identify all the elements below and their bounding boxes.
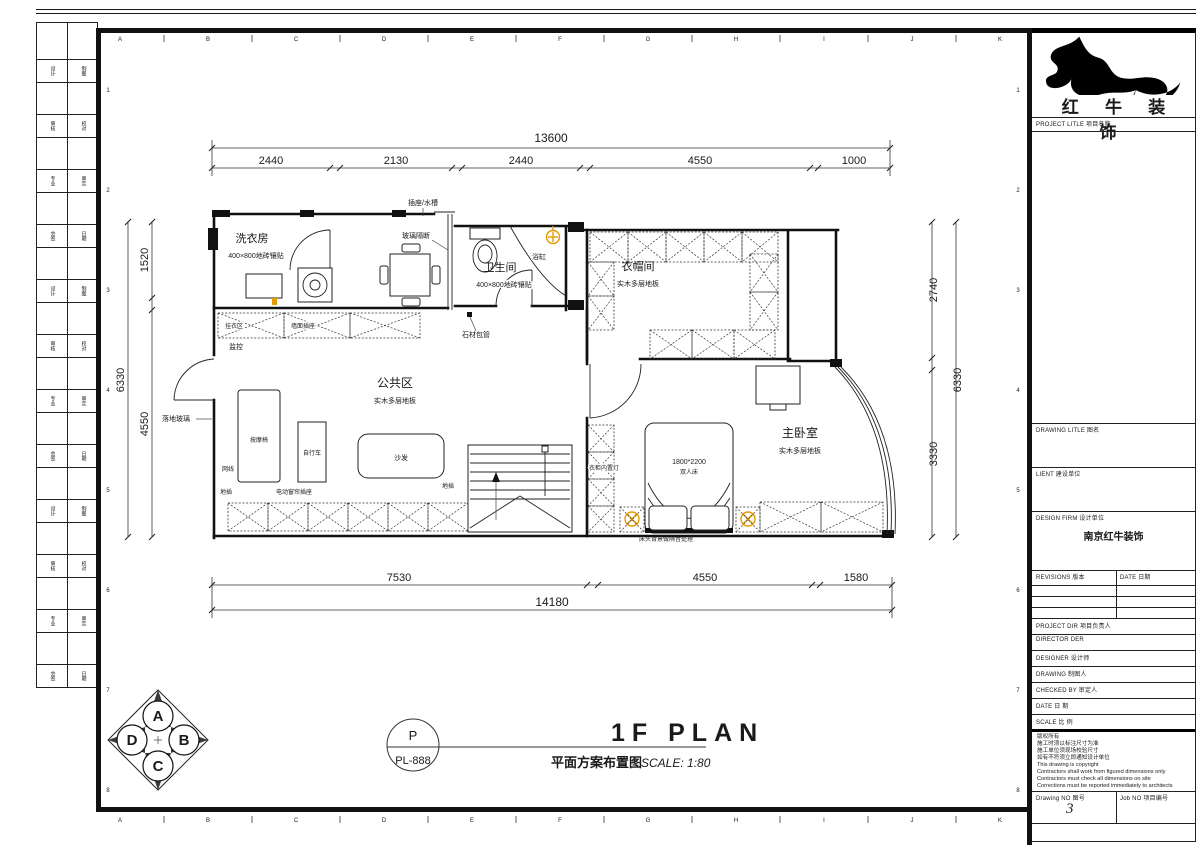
dimension-lines: 13600 2440 2130 2440 4550 1000 7530 4550… [115,131,964,618]
sheet-edge-line2 [36,13,1196,14]
svg-text:6: 6 [106,588,110,594]
svg-text:G: G [646,37,651,43]
staircase [468,445,572,532]
svg-text:地插: 地插 [442,482,454,490]
svg-text:床头背景做隔音处理: 床头背景做隔音处理 [639,535,693,543]
massage-chair [238,390,280,482]
strip-row: 设计制图 [37,499,97,523]
revisions-label: REVISIONS 版本 [1036,572,1085,581]
svg-text:4: 4 [1016,388,1020,394]
orientation-compass: A B C D [108,690,208,790]
svg-text:6330: 6330 [115,368,127,392]
svg-text:1: 1 [106,88,110,94]
laundry-socket-mark [272,298,277,305]
strip-cell: 制图 [68,500,98,522]
strip-row: 设计制图 [37,279,97,303]
svg-text:4550: 4550 [139,412,151,436]
title-block: 红 牛 装 饰 PROJECT LITLE 项目名称 DRAWING LITLE… [1032,28,1196,842]
drawing-no-value: 3 [1066,801,1074,818]
svg-text:6: 6 [1016,588,1020,594]
plan-title-en: 1F PLAN [611,719,764,747]
strip-cell: 审定 [68,170,98,192]
svg-text:I: I [823,818,825,824]
strip-cell: 会签 [37,665,67,687]
svg-text:2130: 2130 [384,155,408,167]
drawing-frame [96,28,1032,845]
svg-text:E: E [470,818,474,824]
plan-title-cn: 平面方案布置图 [551,755,642,770]
svg-text:实木多层地板: 实木多层地板 [617,279,659,288]
svg-text:B: B [206,818,210,824]
strip-cell: 制图 [68,60,98,82]
svg-text:玻璃隔断: 玻璃隔断 [402,231,430,240]
svg-text:C: C [153,758,164,775]
svg-text:7: 7 [1016,688,1020,694]
logo-text: 红 牛 装 饰 [1032,93,1195,143]
svg-text:8: 8 [106,788,110,794]
drawing-title-label: DRAWING LITLE 图名 [1036,425,1099,434]
svg-text:监控: 监控 [229,342,243,351]
svg-text:按摩椅: 按摩椅 [250,436,268,444]
director-label: DIRECTOR DER [1036,637,1084,643]
svg-text:1520: 1520 [139,248,151,272]
svg-text:插座/水槽: 插座/水槽 [408,198,438,207]
strip-cell: 设计 [37,60,67,82]
svg-text:2: 2 [106,188,110,194]
svg-text:400×800地砖镶贴: 400×800地砖镶贴 [476,280,531,289]
svg-text:挂衣区: 挂衣区 [225,322,243,330]
strip-cell: 专业 [37,610,67,632]
svg-text:石材包管: 石材包管 [462,330,490,339]
svg-text:6330: 6330 [952,368,964,392]
svg-text:D: D [127,732,138,749]
svg-text:I: I [823,37,825,43]
strip-row: 会签日期 [37,224,97,248]
laundry-counter [246,274,282,298]
strip-row: 审核校对 [37,334,97,358]
svg-text:D: D [382,37,387,43]
drawing-label: DRAWING 制图人 [1036,669,1087,678]
svg-text:K: K [998,37,1002,43]
svg-text:B: B [206,37,210,43]
svg-text:1580: 1580 [844,572,868,584]
svg-text:沙发: 沙发 [394,453,408,462]
svg-text:5: 5 [106,488,110,494]
svg-text:14180: 14180 [535,595,569,609]
svg-text:400×800地砖镶贴: 400×800地砖镶贴 [228,251,283,260]
strip-cell: 审核 [37,555,67,577]
svg-text:墙面插座: 墙面插座 [291,322,315,330]
client-label: LIENT 建设单位 [1036,469,1081,478]
sheet-edge-line [36,9,1196,10]
svg-text:双人床: 双人床 [680,468,698,476]
redbull-logo-icon [1032,35,1196,95]
svg-text:F: F [558,37,562,43]
room-label-laundry: 洗衣房 [236,231,269,245]
strip-cell: 日期 [68,225,98,247]
svg-text:7: 7 [106,688,110,694]
svg-text:3: 3 [106,288,110,294]
strip-row: 审核校对 [37,114,97,138]
design-firm-value: 南京红牛装饰 [1032,528,1195,543]
floor-plan-drawing: AB CD EF GH IJ K AB CD EF GH IJ K 12 34 … [96,28,1032,845]
strip-cell: 日期 [68,665,98,687]
bed [645,423,733,533]
svg-text:13600: 13600 [534,131,568,145]
svg-text:J: J [911,818,914,824]
strip-row: 会签日期 [37,444,97,468]
svg-text:实木多层地板: 实木多层地板 [374,396,416,405]
designer-label: DESIGNER 设计师 [1036,653,1089,662]
svg-text:2: 2 [1016,188,1020,194]
svg-text:衣柜内置灯: 衣柜内置灯 [589,464,619,472]
strip-cell: 审核 [37,335,67,357]
svg-text:自行车: 自行车 [303,449,321,457]
svg-text:H: H [734,818,738,824]
svg-text:2440: 2440 [509,155,533,167]
drawing-no-label: Drawing NO 图号 [1036,793,1085,802]
svg-text:G: G [646,818,651,824]
note-line: Corrections must be reported immediately… [1037,783,1193,790]
strip-cell: 制图 [68,280,98,302]
room-label-public: 公共区 [377,376,413,390]
toilet [470,228,500,239]
room-label-master: 主卧室 [782,425,818,440]
svg-text:落地玻璃: 落地玻璃 [162,414,190,423]
svg-text:实木多层地板: 实木多层地板 [779,446,821,455]
svg-text:1800*2200: 1800*2200 [672,459,706,466]
plan-code-letter: P [409,728,418,743]
date-col-label: DATE 日期 [1120,572,1151,581]
job-no-label: Job NO 项目编号 [1120,793,1168,802]
svg-text:2740: 2740 [928,278,940,302]
strip-cell: 校对 [68,335,98,357]
strip-cell: 审定 [68,390,98,412]
strip-row: 专业审定 [37,609,97,633]
svg-text:4: 4 [106,388,110,394]
svg-text:D: D [382,818,387,824]
svg-text:网线: 网线 [222,465,234,473]
strip-cell: 专业 [37,390,67,412]
room-label-cloakroom: 衣帽间 [622,259,655,273]
strip-row: 专业审定 [37,169,97,193]
strip-cell: 设计 [37,500,67,522]
strip-row: 专业审定 [37,389,97,413]
svg-text:5: 5 [1016,488,1020,494]
strip-cell: 审定 [68,610,98,632]
plan-scale: SCALE: 1:80 [641,756,711,770]
sheet-title: P PL-888 平面方案布置图 1F PLAN SCALE: 1:80 [387,719,764,771]
svg-text:J: J [911,37,914,43]
svg-text:1: 1 [1016,88,1020,94]
strip-cell: 审核 [37,115,67,137]
signature-strip: 设计制图审核校对专业审定会签日期设计制图审核校对专业审定会签日期设计制图审核校对… [36,22,98,688]
svg-text:电动窗帘插座: 电动窗帘插座 [276,488,312,496]
dining-table [390,254,430,296]
svg-text:浴缸: 浴缸 [532,252,546,261]
design-firm-label: DESIGN FIRM 设计单位 [1036,513,1104,522]
strip-cell: 会签 [37,225,67,247]
svg-text:A: A [118,37,122,43]
sheet: 设计制图审核校对专业审定会签日期设计制图审核校对专业审定会签日期设计制图审核校对… [0,0,1200,845]
svg-text:A: A [118,818,122,824]
svg-text:7530: 7530 [387,572,411,584]
svg-text:1000: 1000 [842,155,866,167]
strip-cell: 日期 [68,445,98,467]
dresser [756,366,800,404]
svg-text:A: A [153,708,164,725]
plan-code: PL-888 [395,755,430,767]
svg-text:C: C [294,37,299,43]
svg-text:地插: 地插 [220,488,232,496]
project-dir-label: PROJECT DIR 项目负责人 [1036,621,1111,630]
strip-row: 设计制图 [37,59,97,83]
svg-text:F: F [558,818,562,824]
strip-row: 审核校对 [37,554,97,578]
svg-text:4550: 4550 [688,155,712,167]
strip-cell: 校对 [68,115,98,137]
svg-text:8: 8 [1016,788,1020,794]
strip-cell: 设计 [37,280,67,302]
room-label-bathroom: 卫生间 [484,260,517,274]
checked-by-label: CHECKED BY 审定人 [1036,685,1097,694]
svg-text:H: H [734,37,738,43]
svg-text:K: K [998,818,1002,824]
strip-cell: 专业 [37,170,67,192]
stone-pipe-column [467,312,472,317]
svg-text:3330: 3330 [928,442,940,466]
svg-text:E: E [470,37,474,43]
strip-row: 会签日期 [37,664,97,688]
svg-text:B: B [179,732,190,749]
strip-cell: 校对 [68,555,98,577]
svg-text:3: 3 [1016,288,1020,294]
svg-text:4550: 4550 [693,572,717,584]
shower-symbol [547,226,560,244]
svg-text:C: C [294,818,299,824]
date-label: DATE 日 期 [1036,701,1069,710]
strip-cell: 会签 [37,445,67,467]
project-title-label: PROJECT LITLE 项目名称 [1036,119,1111,128]
scale-label: SCALE 比 例 [1036,717,1073,726]
svg-text:2440: 2440 [259,155,283,167]
